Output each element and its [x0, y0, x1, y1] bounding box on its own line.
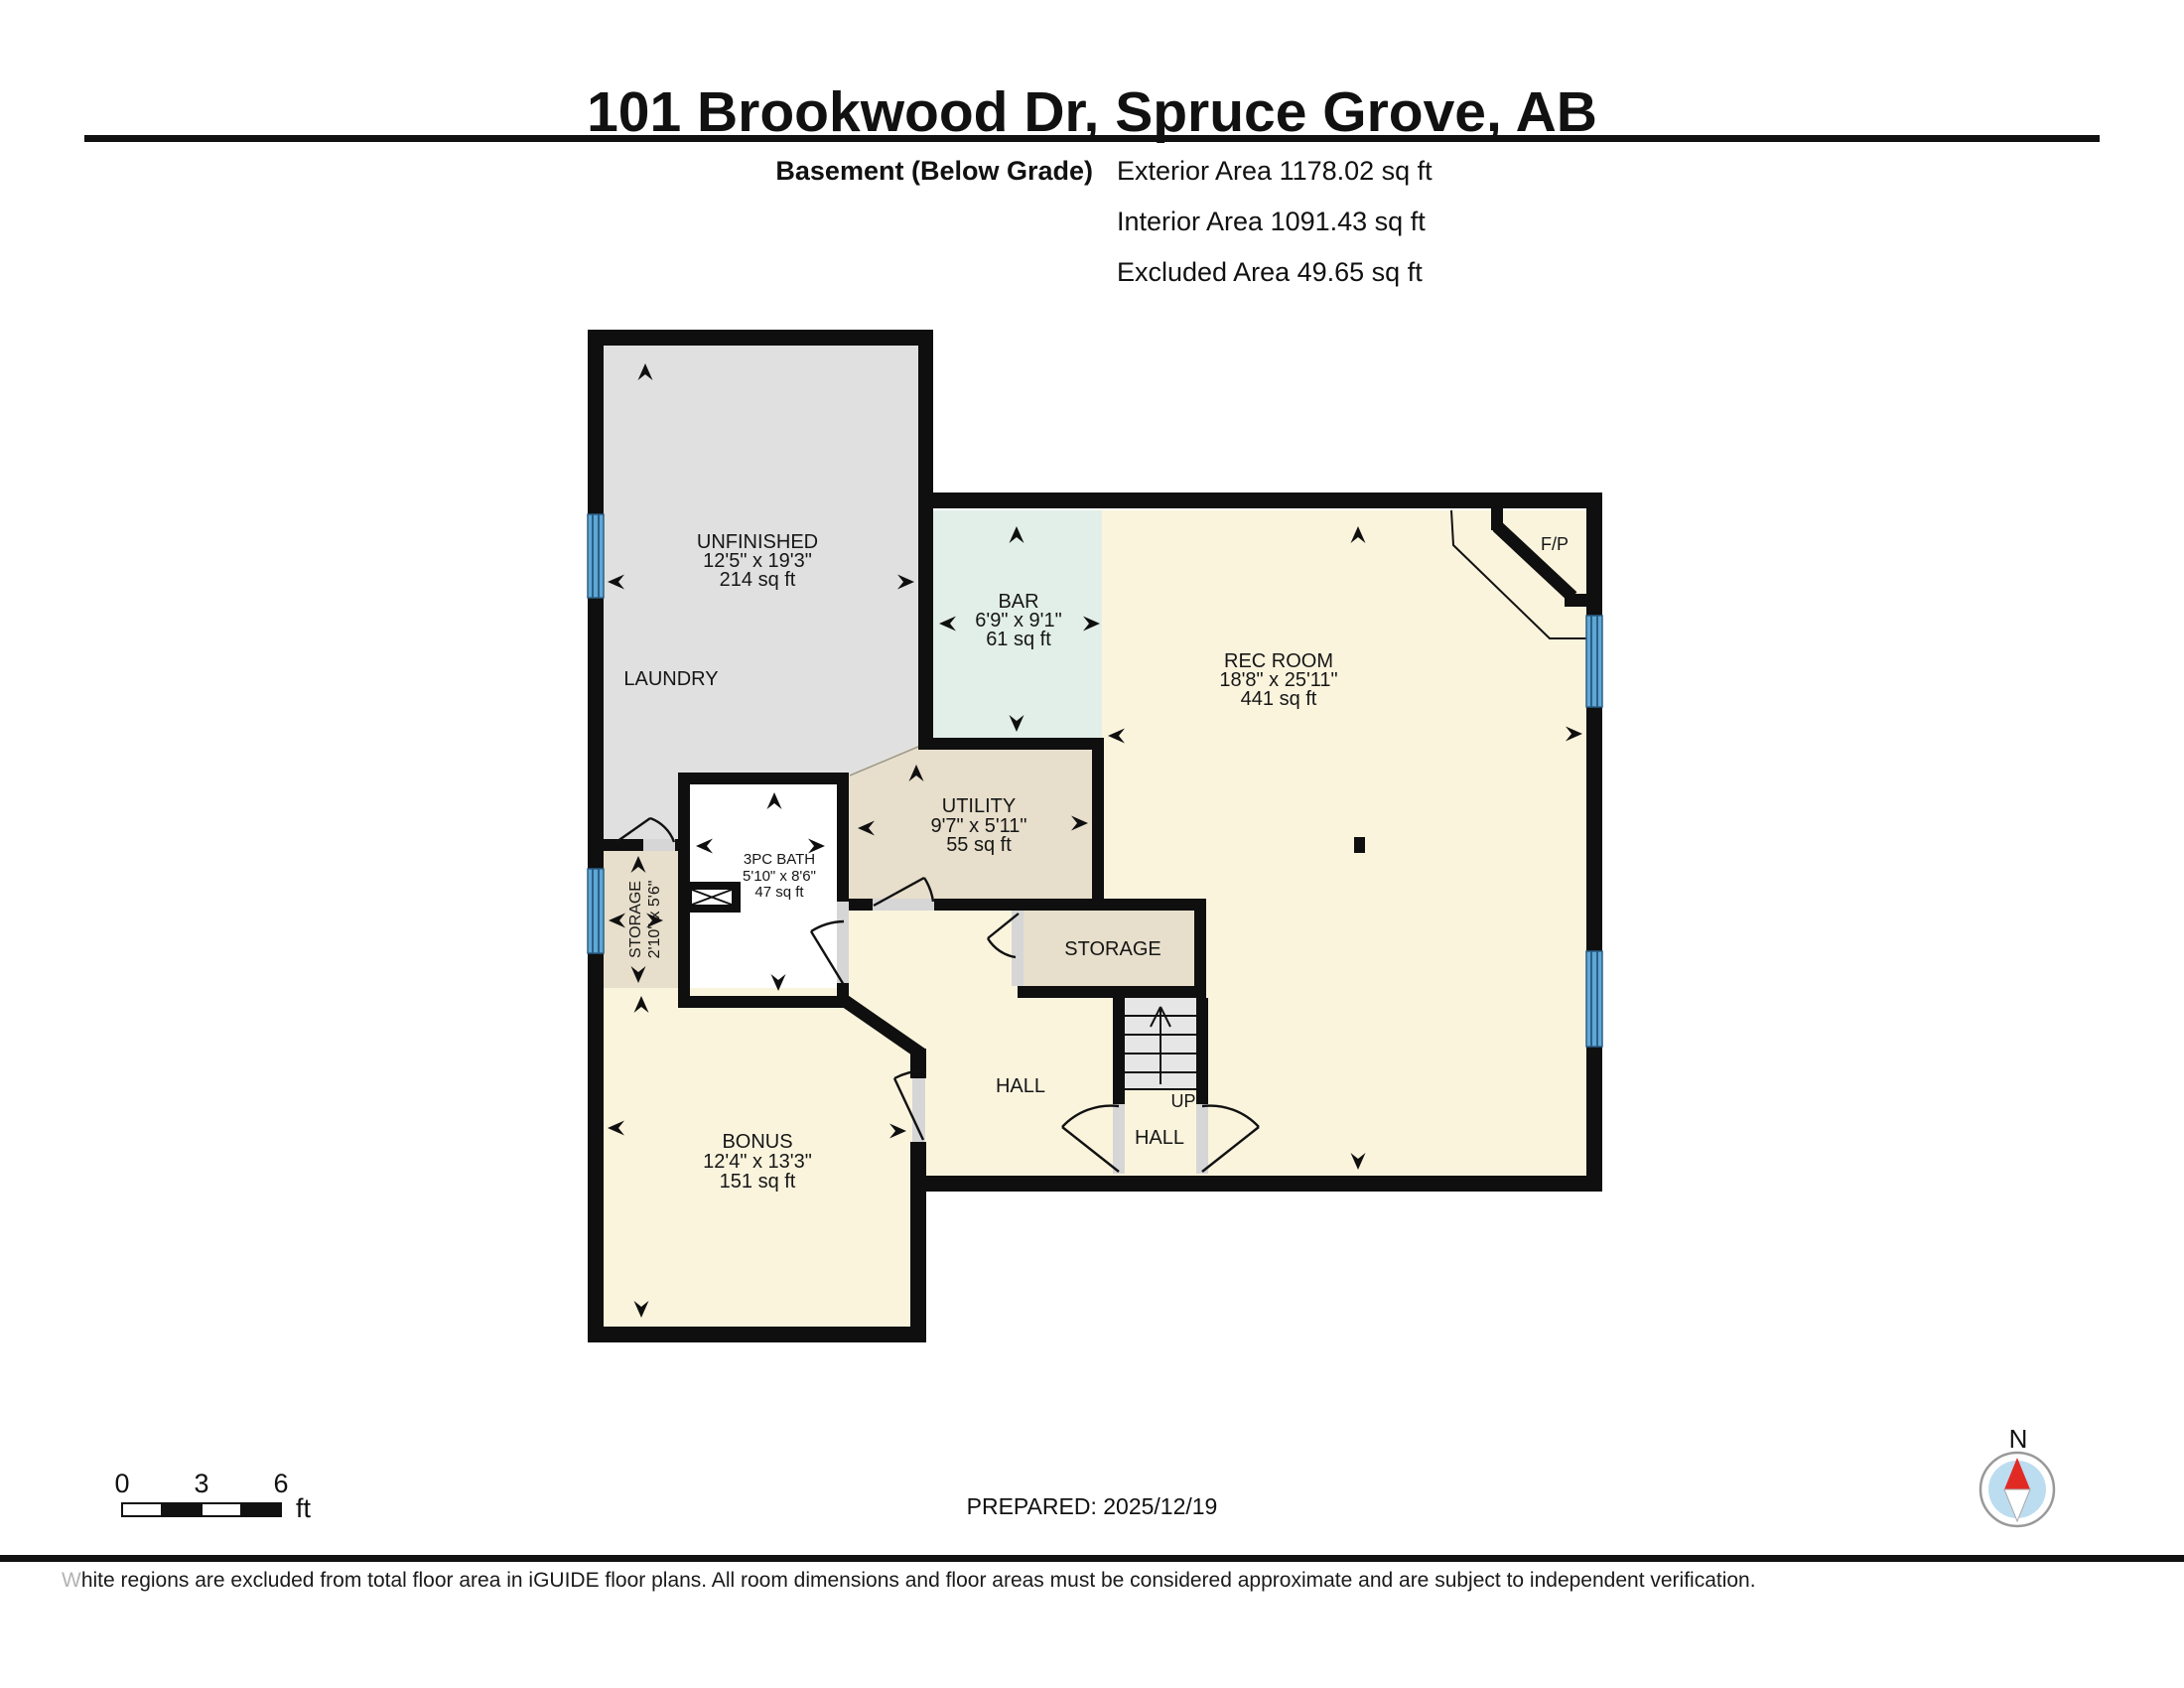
wall-segment	[588, 330, 933, 346]
prepared-date: PREPARED: 2025/12/19	[0, 1493, 2184, 1520]
wall-segment	[918, 1176, 1602, 1192]
room-area-bonus: 151 sq ft	[720, 1171, 796, 1193]
door-jamb	[643, 839, 675, 851]
room-label-bonus: BONUS	[722, 1131, 792, 1153]
exterior-area: Exterior Area 1178.02 sq ft	[1117, 154, 1433, 188]
support-post	[1354, 837, 1365, 853]
window	[588, 869, 604, 953]
wall-segment	[1024, 899, 1206, 911]
window	[1586, 616, 1602, 707]
footer-divider	[0, 1555, 2184, 1562]
compass-north-label: N	[2009, 1424, 2028, 1454]
room-label-storage-left: STORAGE	[627, 881, 644, 958]
floor-label: Basement (Below Grade)	[0, 154, 1093, 188]
room-area-utility: 55 sq ft	[946, 834, 1012, 856]
room-label-storage-right: STORAGE	[1064, 938, 1160, 960]
wall-segment	[1194, 899, 1206, 998]
door-jamb	[1012, 911, 1024, 986]
room-label-fireplace: F/P	[1541, 534, 1569, 554]
door-jamb	[837, 902, 849, 983]
window	[588, 514, 604, 598]
wall-segment	[1113, 998, 1125, 1104]
wall-segment	[588, 1327, 926, 1342]
floor-plan-drawing: UNFINISHED 12'5" x 19'3" 214 sq ft LAUND…	[556, 298, 1668, 1410]
area-summary: Exterior Area 1178.02 sq ft Interior Are…	[1117, 154, 1433, 306]
wall-segment	[1018, 986, 1206, 998]
compass: N	[1966, 1418, 2075, 1537]
room-label-hall-upper: HALL	[996, 1075, 1045, 1097]
wall-segment	[837, 784, 849, 902]
room-label-bath: 3PC BATH	[744, 851, 815, 868]
wall-segment	[1196, 998, 1208, 1104]
room-area-bath: 47 sq ft	[754, 884, 804, 901]
wall-segment	[1565, 594, 1592, 607]
room-label-laundry: LAUNDRY	[623, 668, 718, 690]
room-dims-bonus: 12'4" x 13'3"	[703, 1151, 812, 1173]
wall-segment	[588, 839, 643, 851]
door-jamb	[1113, 1104, 1125, 1174]
wall-segment	[918, 738, 1104, 750]
room-dims-storage-left: 2'10" x 5'6"	[646, 881, 663, 959]
room-area-unfinished: 214 sq ft	[720, 569, 796, 591]
door-jamb	[1196, 1104, 1208, 1174]
wall-segment	[910, 1142, 926, 1182]
room-dims-bath: 5'10" x 8'6"	[743, 868, 816, 885]
wall-segment	[678, 996, 849, 1008]
wall-segment	[910, 1176, 926, 1342]
stairs-up-label: UP	[1170, 1091, 1195, 1111]
room-label-hall-lower: HALL	[1135, 1127, 1184, 1149]
wall-segment	[910, 1049, 926, 1078]
window	[1586, 951, 1602, 1047]
bath-fixture	[678, 882, 741, 913]
wall-segment	[918, 330, 933, 750]
wall-segment	[934, 899, 1024, 911]
room-area-bar: 61 sq ft	[986, 629, 1051, 650]
wall-segment	[675, 839, 681, 851]
title-divider	[84, 135, 2100, 142]
footer-disclaimer: White regions are excluded from total fl…	[62, 1569, 2126, 1593]
room-area-rec-room: 441 sq ft	[1241, 688, 1317, 710]
wall-segment	[588, 330, 604, 1342]
floor-plan-page: 101 Brookwood Dr, Spruce Grove, AB Basem…	[0, 0, 2184, 1688]
wall-segment	[678, 773, 849, 784]
excluded-area: Excluded Area 49.65 sq ft	[1117, 255, 1433, 289]
interior-area: Interior Area 1091.43 sq ft	[1117, 205, 1433, 238]
room-label-utility: UTILITY	[942, 795, 1016, 817]
wall-segment	[1092, 738, 1104, 911]
